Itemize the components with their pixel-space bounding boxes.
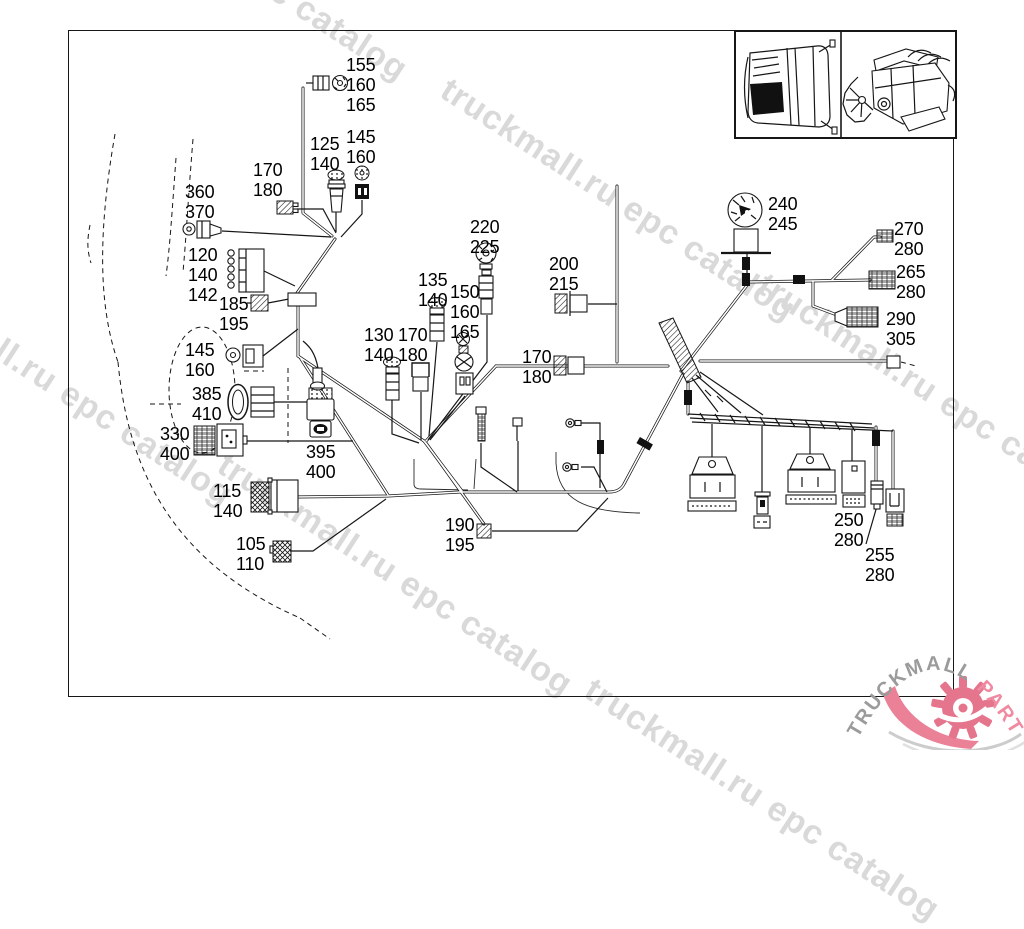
sensor-150-stack [455,333,473,395]
connector-105 [270,541,291,562]
harness-conduit [659,318,701,383]
grommet-240 [721,193,771,253]
connector-200 [555,291,587,316]
sensor-220-stack [476,243,496,314]
connector-185 [247,295,268,311]
connector-170b [412,363,429,391]
connector-170c [554,356,584,375]
injector-connector-b [786,454,836,504]
connector-270 [877,230,893,242]
bolt-sensor-a [476,407,486,441]
bolt-sensor-b [513,418,522,441]
connector-265 [869,271,895,289]
injector-connector-a [688,457,736,511]
connector-120 [228,249,264,292]
engine-outline-hint [414,452,640,513]
connector-155 [306,76,348,91]
connector-125 [328,170,345,212]
relay-box [842,461,865,507]
epc-catalog-page: { "page": { "background": "#ffffff", "bo… [0,0,1024,750]
connector-170a [277,201,298,214]
ring-terminal-b [563,463,578,471]
sensor-135 [428,298,446,342]
plug-connector-center [754,492,770,528]
connector-190 [477,524,491,538]
connector-145a [355,166,369,199]
connector-330 [194,424,247,456]
connectors [183,76,904,563]
sensor-130 [384,357,401,400]
inset-box [735,31,956,138]
connector-115 [251,478,298,514]
connector-360 [183,221,221,238]
connector-right-end [886,489,904,526]
diagram-art: TRUCKMALL PARTS [0,0,1024,750]
ring-terminal-a [566,419,581,427]
connector-385 [228,385,274,420]
connector-290 [835,307,878,327]
cylinder-connector-255 [871,481,883,509]
